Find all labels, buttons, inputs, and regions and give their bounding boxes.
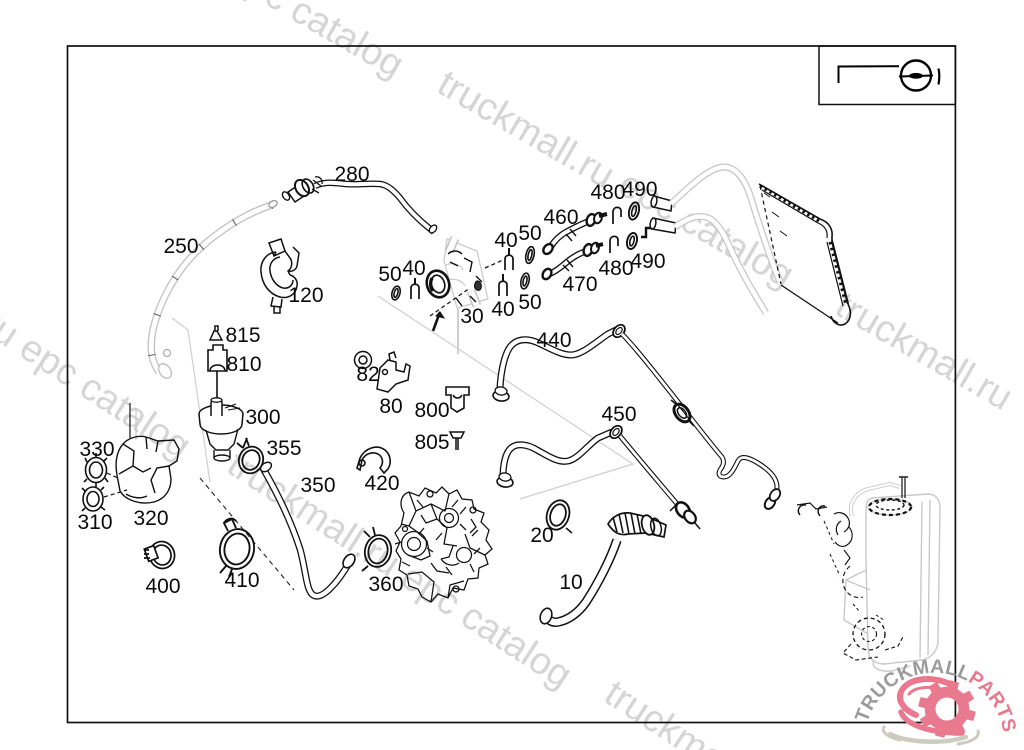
svg-text:30: 30 <box>460 305 483 328</box>
svg-text:815: 815 <box>225 324 260 347</box>
svg-text:280: 280 <box>334 163 369 186</box>
svg-text:450: 450 <box>601 403 636 426</box>
svg-text:420: 420 <box>364 472 399 495</box>
svg-text:360: 360 <box>368 573 403 596</box>
svg-text:310: 310 <box>77 511 112 534</box>
svg-text:80: 80 <box>379 395 402 418</box>
svg-text:300: 300 <box>245 406 280 429</box>
svg-text:355: 355 <box>266 437 301 460</box>
svg-text:410: 410 <box>224 569 259 592</box>
svg-text:805: 805 <box>414 431 449 454</box>
svg-text:50: 50 <box>518 291 541 314</box>
svg-text:440: 440 <box>536 329 571 352</box>
svg-text:810: 810 <box>226 353 261 376</box>
svg-text:400: 400 <box>145 575 180 598</box>
svg-text:350: 350 <box>300 474 335 497</box>
svg-text:50: 50 <box>378 263 401 286</box>
svg-text:800: 800 <box>414 399 449 422</box>
svg-text:50: 50 <box>518 222 541 245</box>
svg-text:470: 470 <box>562 273 597 296</box>
svg-text:10: 10 <box>559 571 582 594</box>
svg-text:40: 40 <box>491 298 514 321</box>
svg-text:40: 40 <box>494 229 517 252</box>
svg-text:480: 480 <box>598 257 633 280</box>
svg-text:320: 320 <box>133 507 168 530</box>
svg-text:490: 490 <box>622 178 657 201</box>
svg-text:480: 480 <box>590 181 625 204</box>
svg-text:120: 120 <box>288 284 323 307</box>
svg-text:460: 460 <box>543 206 578 229</box>
svg-text:20: 20 <box>530 524 553 547</box>
svg-text:82: 82 <box>356 363 379 386</box>
svg-text:330: 330 <box>79 438 114 461</box>
svg-text:250: 250 <box>163 235 198 258</box>
svg-text:40: 40 <box>402 257 425 280</box>
svg-text:490: 490 <box>630 250 665 273</box>
